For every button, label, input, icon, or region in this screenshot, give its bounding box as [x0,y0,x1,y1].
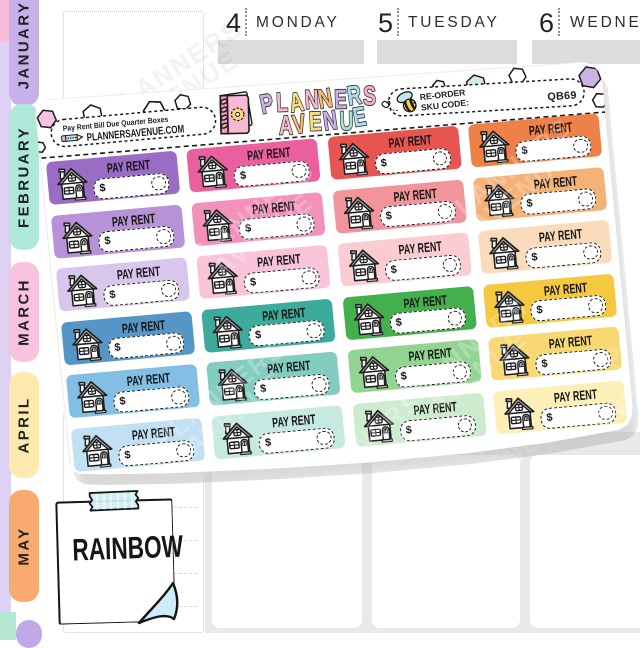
svg-text:QB69: QB69 [547,90,577,104]
svg-text:S: S [363,81,376,111]
svg-text:P: P [257,88,276,120]
svg-text:E: E [308,106,322,136]
